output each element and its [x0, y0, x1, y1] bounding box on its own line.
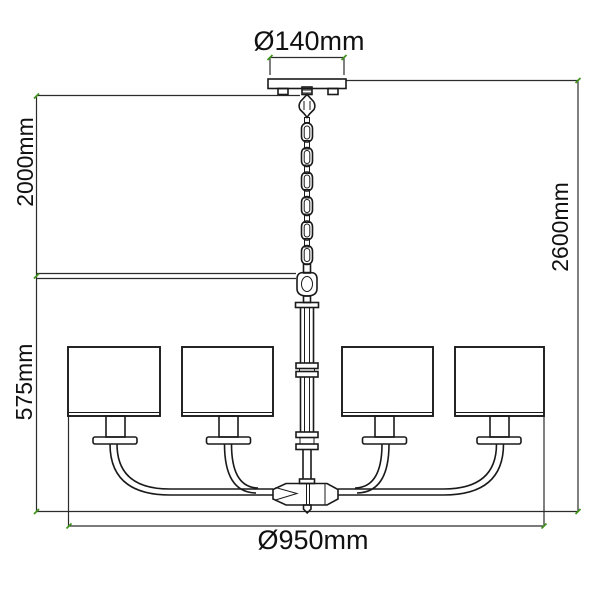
rod-lower-inner [305, 377, 310, 432]
rod-lower [301, 377, 314, 432]
lower-stem [303, 450, 311, 480]
bobeche-disc [363, 437, 407, 444]
candle-socket [219, 416, 238, 437]
canopy-screw-right [328, 89, 338, 95]
stem-neck [304, 296, 311, 303]
hook-gate [304, 101, 310, 110]
mid-coupling-bottom [296, 372, 318, 378]
bobeche-disc [207, 437, 251, 444]
suspension-chain [302, 123, 313, 273]
chain-link-inner [304, 200, 310, 213]
clevis-hole [302, 277, 313, 292]
dimension-diagram: Ø140mm 2000mm 575mm 2600mm Ø950mm [0, 0, 600, 600]
hub-arm-socket [276, 488, 298, 501]
overall-height-label: 2600mm [547, 182, 573, 271]
lamp-shade-4 [455, 347, 544, 416]
hub-body [273, 484, 338, 506]
chain-link-inner [304, 175, 310, 188]
dimension-labels: Ø140mm 2000mm 575mm 2600mm Ø950mm [11, 26, 573, 555]
bottom-coupling-bottom [296, 444, 318, 450]
rod-upper [301, 308, 314, 364]
dim-canopy-line [270, 58, 344, 76]
arm-tube-left [170, 489, 273, 495]
candle-socket [375, 416, 394, 437]
mid-coupling-top [296, 363, 318, 369]
hub-center-lines [307, 484, 310, 506]
chain-link-inner [304, 249, 310, 262]
bobeche-disc [477, 437, 521, 444]
fixture-height-label: 575mm [11, 344, 37, 421]
canopy-screw-left [278, 89, 288, 95]
rod-upper-inner [305, 308, 310, 364]
hook-outline [299, 95, 315, 118]
candle-holders [93, 416, 521, 444]
nipple-threads [302, 90, 312, 93]
lamp-shade-3 [342, 347, 433, 416]
bobeche-disc [93, 437, 137, 444]
chain-end-link [304, 264, 311, 273]
fixture-diameter-label: Ø950mm [257, 525, 368, 555]
chain-link-inner [304, 224, 310, 237]
center-column [296, 308, 318, 484]
ceiling-canopy [268, 79, 346, 95]
chain-link-inner [304, 126, 310, 139]
arm-outer-right [444, 444, 504, 495]
stem-top-disc [296, 303, 319, 308]
lamp-shades [68, 347, 544, 416]
center-hub [273, 484, 338, 514]
hanging-hook [299, 95, 315, 123]
arm-outer-left [110, 444, 170, 495]
candle-socket [490, 416, 509, 437]
lamp-shade-1 [68, 347, 160, 416]
arm-inner-right [355, 444, 389, 493]
bottom-coupling-band [300, 438, 314, 445]
bottom-coupling-top [296, 432, 318, 438]
chain-length-label: 2000mm [12, 117, 38, 206]
stem-top-loop [296, 273, 319, 308]
arm-tube-right [338, 489, 444, 495]
candle-socket [106, 416, 125, 437]
chandelier-drawing: Ø140mm 2000mm 575mm 2600mm Ø950mm [0, 0, 600, 600]
chain-link-inner [304, 151, 310, 164]
arm-inner-left [225, 444, 259, 493]
canopy-diameter-label: Ø140mm [253, 26, 364, 56]
lamp-shade-2 [182, 347, 273, 416]
